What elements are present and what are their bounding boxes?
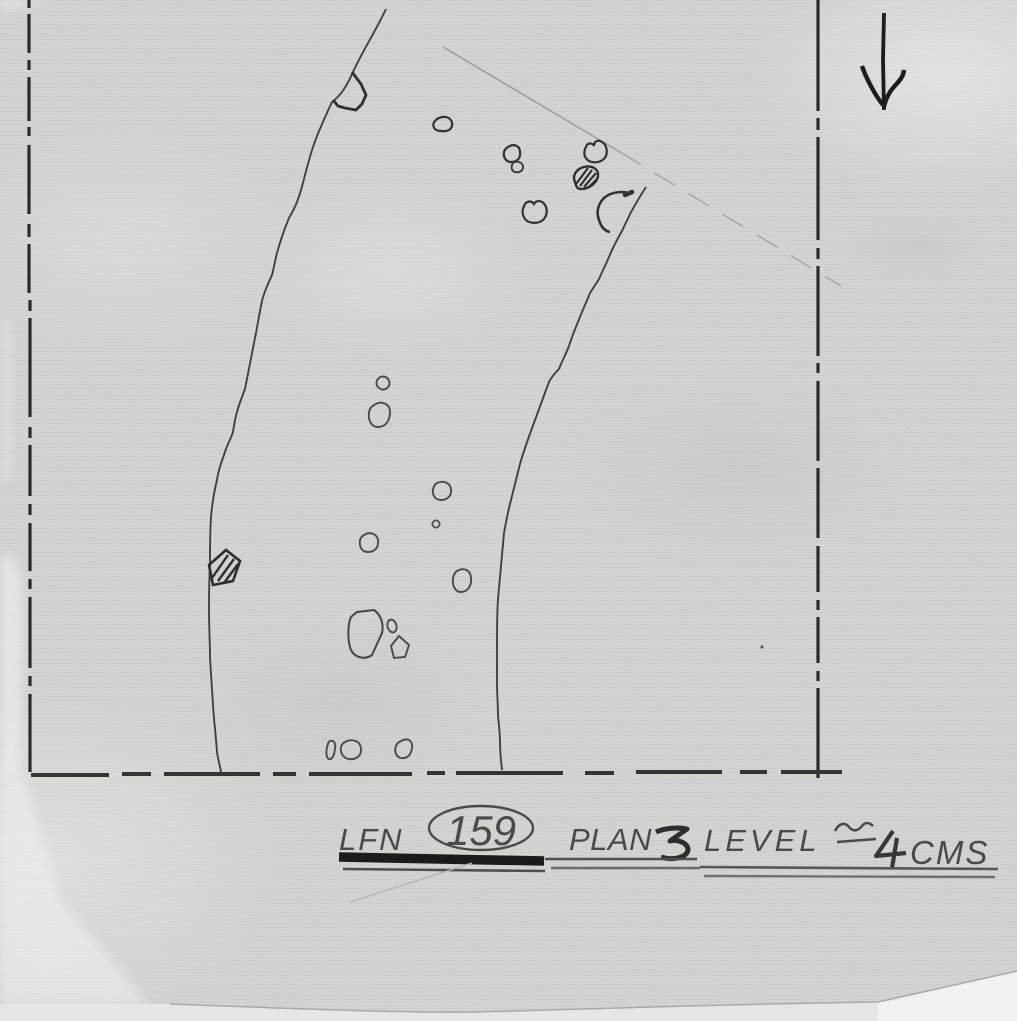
svg-text:LEVEL: LEVEL [704,823,821,858]
svg-text:PLAN: PLAN [569,822,652,857]
svg-text:159: 159 [446,807,516,854]
svg-text:CMS: CMS [910,834,989,871]
svg-text:LFN: LFN [339,822,404,857]
